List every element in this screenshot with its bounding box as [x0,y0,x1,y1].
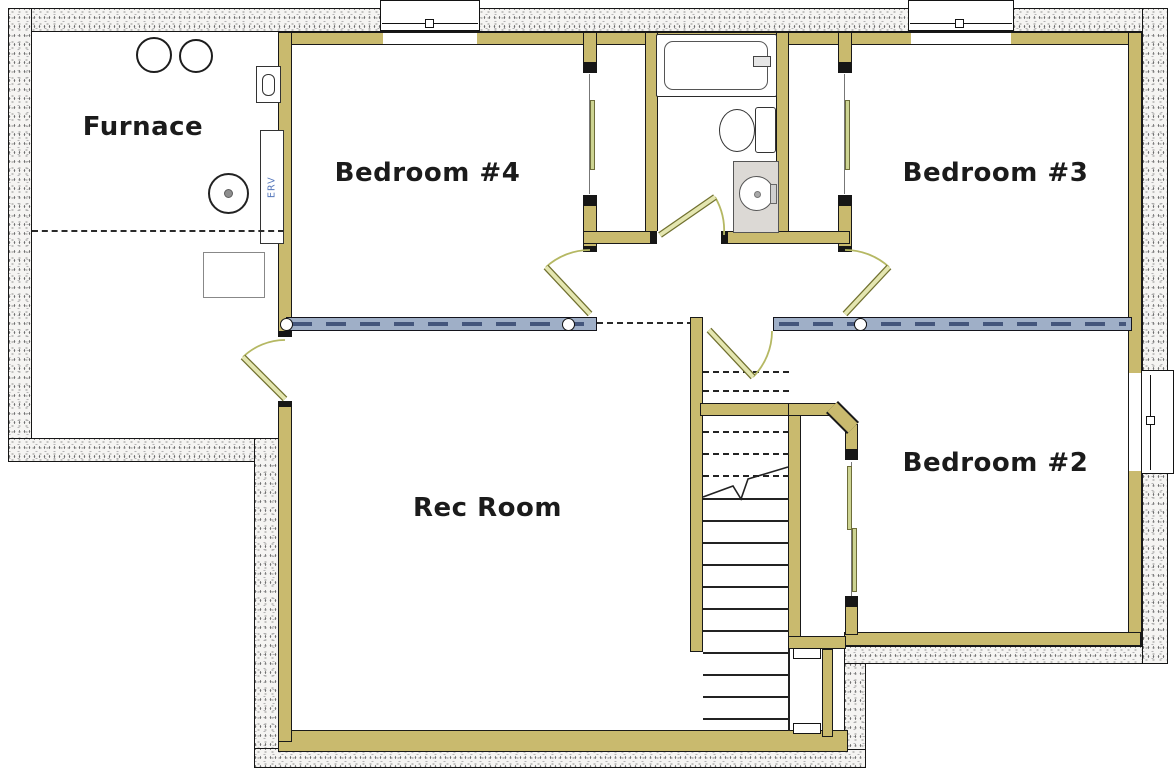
stair-door-leaf [709,330,753,377]
window-sill-bedroom3 [911,33,1011,44]
wall-fixture-inner [262,74,275,96]
stair-tread [703,674,789,676]
bedroom4-door-jamb [583,246,597,252]
nook-opening-bottom [793,723,821,734]
window-sash-bedroom2 [1146,416,1155,425]
stair-tread [703,586,789,588]
equipment-pad [203,252,265,298]
bathroom-door-jamb-left [650,231,657,244]
bedroom2-closet-jamb-bottom [845,596,858,607]
stair-tread [703,520,789,522]
window-sash-bedroom4 [425,19,434,28]
furnace-door-opening [278,337,292,401]
window-sash-bedroom3 [955,19,964,28]
stair-tread [703,652,789,654]
stair-tread-above-cut [703,453,789,455]
exterior-wall-furnace-bottom [8,438,280,462]
stair-tread [703,630,789,632]
bedroom4-closet-jamb-bottom [583,195,597,206]
bedroom3-door-jamb [838,246,852,252]
toilet-bowl [719,109,755,152]
stair-tread [703,498,789,500]
bedroom3-closet-jamb-bottom [838,195,852,206]
bedroom3-closet-bypass-door [845,100,850,170]
bearing-wall-west-segment [286,317,597,331]
stair-break-line [703,467,788,499]
floor-drain-grate [224,189,233,198]
structural-post-west [280,318,293,331]
stair-tread-above-cut [703,371,789,373]
room-label-furnace: Furnace [58,112,228,142]
bedroom4-closet-jamb-top [583,62,597,73]
bathroom-door-jamb-right [721,231,728,244]
stair-tread [703,542,789,544]
bedroom3-door-opening [838,251,852,317]
stair-tread [703,718,789,720]
wall-nook-east [822,649,833,737]
floor-plan: ERV Furnace Bedroom #4 Bedroom #3 Bedroo… [0,0,1175,768]
furnace-reference-dashed-line [32,230,284,232]
exterior-wall-bedroom2-bottom [844,646,1168,664]
wall-stair-west [690,317,703,652]
wall-right-lining [1128,32,1142,646]
window-sill-bedroom2 [1129,373,1141,471]
erv-unit: ERV [260,130,284,244]
room-label-recroom: Rec Room [385,493,590,523]
water-softener-tank [179,39,213,73]
exterior-wall-right [1142,8,1168,664]
stair-tread-above-cut [703,431,789,433]
bathroom-door-leaf-outline [660,197,715,235]
wall-recroom-bottom [278,730,848,752]
stair-tread-above-cut [703,475,789,477]
exterior-wall-recroom-left [254,438,280,768]
wall-stair-east [788,403,801,649]
wall-bedroom2-closet-top [788,403,837,416]
structural-post-east [854,318,867,331]
bathroom-door-leaf [660,197,715,235]
wall-bedroom2-bottom [844,632,1141,646]
wall-stair-header [700,403,790,416]
structural-post-center [562,318,575,331]
furnace-door-jamb-top [278,331,292,337]
window-sill-bedroom4 [383,33,477,44]
sink-drain [754,191,761,198]
bedroom4-door-opening [583,251,597,317]
bathroom-door-arc [715,197,724,235]
stair-tread [703,608,789,610]
room-label-bedroom4: Bedroom #4 [325,158,530,188]
nook-opening-top [793,648,821,659]
exterior-wall-left [8,8,32,462]
stair-tread-above-cut [703,390,789,392]
bedroom2-closet-bypass-door-a [847,466,852,530]
erv-label: ERV [261,131,283,243]
room-label-bedroom3: Bedroom #3 [893,158,1098,188]
bedroom2-closet-bypass-door-b [852,528,857,592]
beam-dashed-line-hallway [597,322,693,324]
stair-tread [703,696,789,698]
bearing-wall-east-segment [773,317,1132,331]
bedroom2-closet-jamb-top [845,449,858,460]
bedroom4-closet-bypass-door [590,100,595,170]
toilet-tank [755,107,776,153]
bathroom-door-opening [656,231,722,244]
sink-faucet [770,184,777,204]
furnace-door-jamb-bottom [278,401,292,407]
stair-tread [703,564,789,566]
bathtub-faucet [753,56,771,67]
water-heater-tank [136,37,172,73]
room-label-bedroom2: Bedroom #2 [893,448,1098,478]
stair-door-leaf-outline [709,330,753,377]
bedroom3-closet-jamb-top [838,62,852,73]
